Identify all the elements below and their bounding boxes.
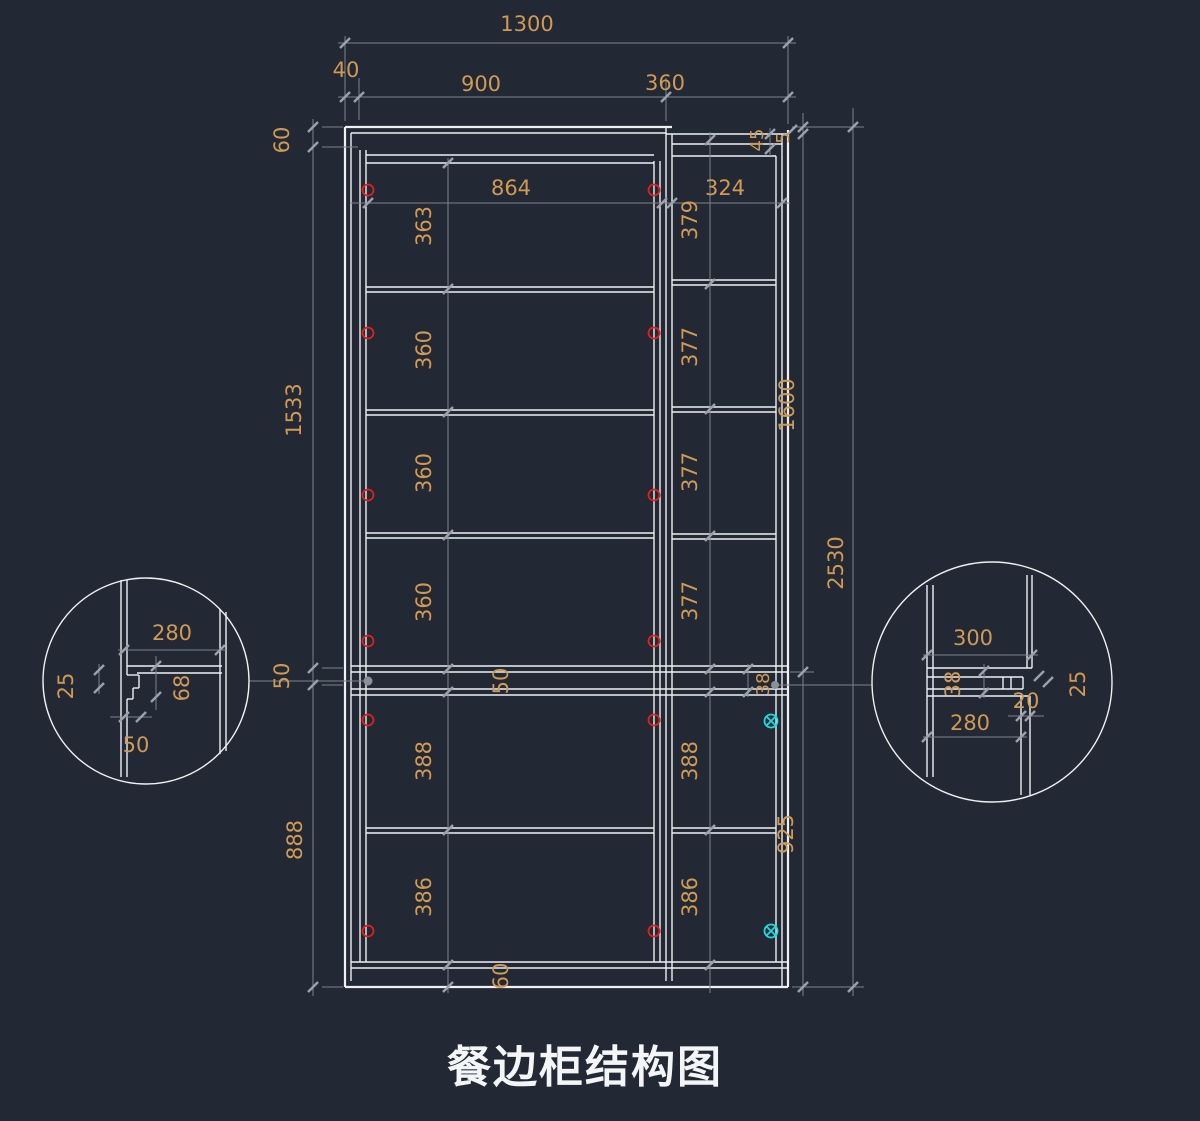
dim-main-lower-2: 386	[412, 877, 436, 917]
dim-main-row-2: 360	[412, 330, 436, 370]
cabinet-structure	[345, 127, 788, 987]
dim-top-right: 360	[645, 71, 685, 95]
dim-right-top-gap: 5	[773, 132, 794, 143]
dim-top-middle: 900	[461, 72, 501, 96]
dim-detail-right-top-width: 300	[953, 626, 993, 650]
dim-main-middle-band: 50	[489, 668, 513, 695]
dim-side-lower-2: 386	[678, 877, 702, 917]
dim-main-row-3: 360	[412, 453, 436, 493]
dim-left-lower: 888	[283, 820, 307, 860]
cad-canvas[interactable]: 1300 40 900 360 60 1533 50 888 45 5 1600…	[0, 0, 1200, 1121]
dim-side-width: 324	[705, 176, 745, 200]
dim-side-row-1: 379	[678, 200, 702, 240]
structure-drawing: 1300 40 900 360 60 1533 50 888 45 5 1600…	[0, 0, 1200, 1121]
dim-main-row-1: 363	[412, 206, 436, 246]
dim-main-row-4: 360	[412, 582, 436, 622]
dim-main-width: 864	[491, 176, 531, 200]
dim-detail-right-thickness: 25	[1066, 671, 1090, 698]
dim-right-upper: 1600	[775, 378, 799, 431]
dim-right-lower: 925	[774, 814, 798, 854]
dim-side-middle-band: 38	[753, 673, 774, 696]
connector-marks	[363, 185, 660, 937]
dim-detail-left-width: 280	[152, 621, 192, 645]
dim-left-middle: 50	[270, 663, 294, 690]
dim-main-lower-1: 388	[412, 741, 436, 781]
dim-side-row-4: 377	[678, 581, 702, 621]
dim-detail-right-bottom-width: 280	[950, 711, 990, 735]
dim-detail-left-thickness: 25	[54, 673, 78, 700]
dim-side-lower-1: 388	[678, 741, 702, 781]
dim-main-base: 60	[489, 963, 513, 990]
dim-right-overall: 2530	[824, 536, 848, 589]
dim-top-left: 40	[333, 58, 360, 82]
leader-dots	[364, 677, 780, 690]
dim-left-upper: 1533	[282, 383, 306, 436]
drawing-title: 餐边柜结构图	[447, 1042, 723, 1093]
dim-detail-right-step: 20	[1013, 689, 1040, 713]
dimension-texts: 1300 40 900 360 60 1533 50 888 45 5 1600…	[54, 12, 1090, 989]
dim-side-row-3: 377	[678, 452, 702, 492]
dim-detail-left-notch-height: 68	[170, 675, 194, 702]
dim-detail-left-notch-width: 50	[123, 733, 150, 757]
dim-side-row-2: 377	[678, 327, 702, 367]
dim-left-top: 60	[270, 127, 294, 154]
dim-detail-right-band: 38	[941, 671, 965, 698]
dim-top-overall: 1300	[500, 12, 553, 36]
dim-right-top-rail: 45	[747, 129, 768, 152]
